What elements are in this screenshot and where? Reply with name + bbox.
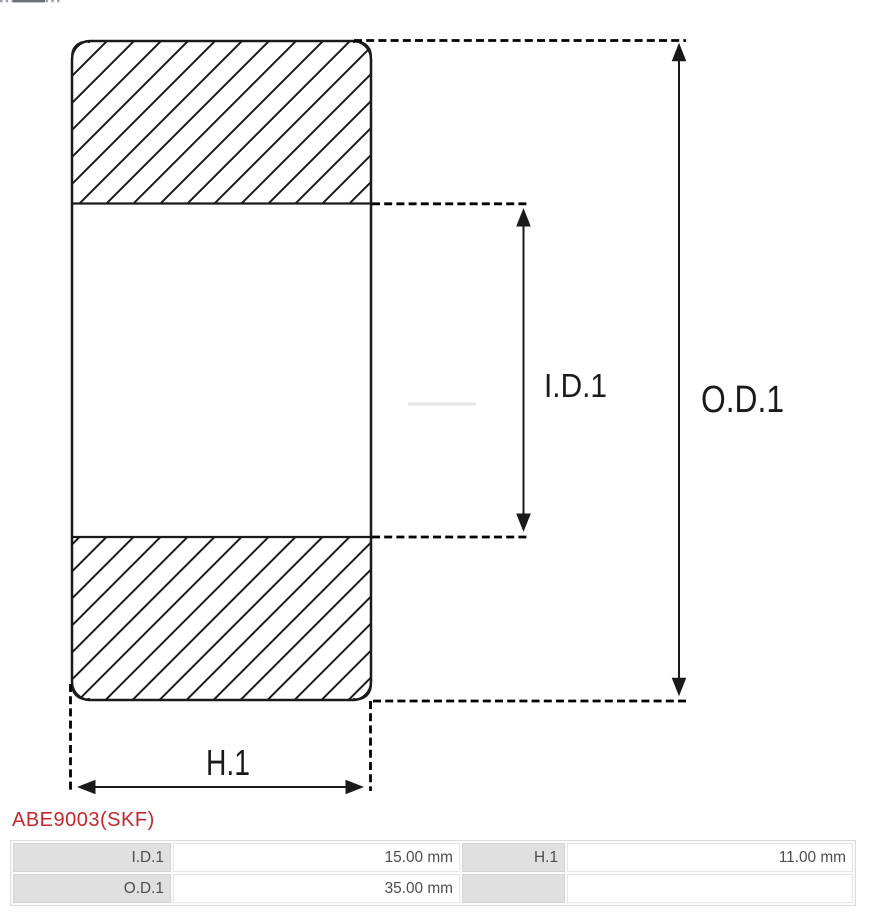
svg-text:I.D.1: I.D.1 (544, 367, 607, 404)
svg-text:O.D.1: O.D.1 (701, 379, 784, 421)
svg-text:H.1: H.1 (206, 742, 250, 783)
